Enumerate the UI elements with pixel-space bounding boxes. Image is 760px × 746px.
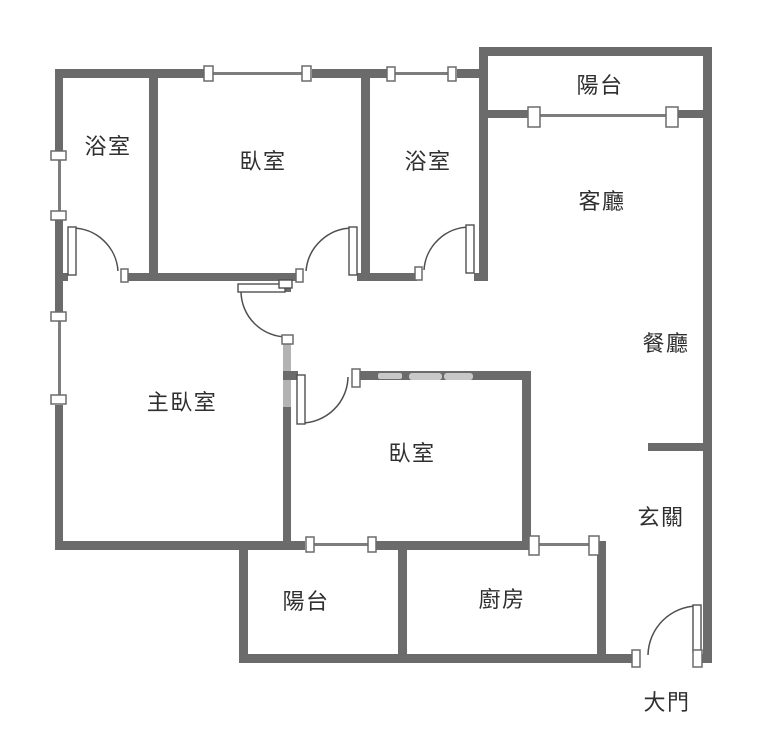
floor-plan: 浴室 臥室 浴室 陽台 客廳 餐廳 主臥室 臥室 玄關 廚房 陽台 大門 (0, 0, 760, 746)
doors (68, 225, 702, 667)
door-bathroom-top-left (68, 227, 128, 282)
window-kitchen (529, 536, 599, 555)
room-label-main-door: 大門 (643, 685, 690, 717)
room-label-entryway: 玄關 (637, 500, 684, 532)
door-bathroom-top-right (415, 225, 474, 280)
window-left-master-bedroom (51, 312, 66, 404)
room-label-balcony-top: 陽台 (576, 68, 623, 100)
room-label-master-bedroom: 主臥室 (147, 385, 218, 417)
room-label-kitchen: 廚房 (478, 582, 525, 614)
window-top-bathroom (387, 67, 456, 81)
wall-segments (55, 47, 712, 663)
window-left-bathroom (51, 151, 66, 220)
door-main-entrance (632, 605, 702, 667)
door-bedroom-top (296, 227, 357, 282)
room-label-bedroom-top: 臥室 (239, 144, 286, 176)
room-label-dining-room: 餐廳 (642, 326, 689, 358)
door-master-bedroom (238, 280, 293, 344)
sliding-window-balcony-living (528, 107, 678, 127)
floor-plan-drawing (0, 0, 760, 746)
room-label-bathroom-top-left: 浴室 (84, 129, 131, 161)
door-bedroom-middle (297, 369, 360, 424)
room-label-bathroom-top-right: 浴室 (404, 144, 451, 176)
room-label-living-room: 客廳 (578, 184, 625, 216)
room-label-balcony-bottom: 陽台 (282, 584, 329, 616)
window-bedroom-balcony-bottom (306, 537, 376, 552)
wardrobe-symbols (378, 373, 473, 380)
window-top-bedroom (204, 66, 311, 81)
room-label-bedroom-middle: 臥室 (388, 436, 435, 468)
